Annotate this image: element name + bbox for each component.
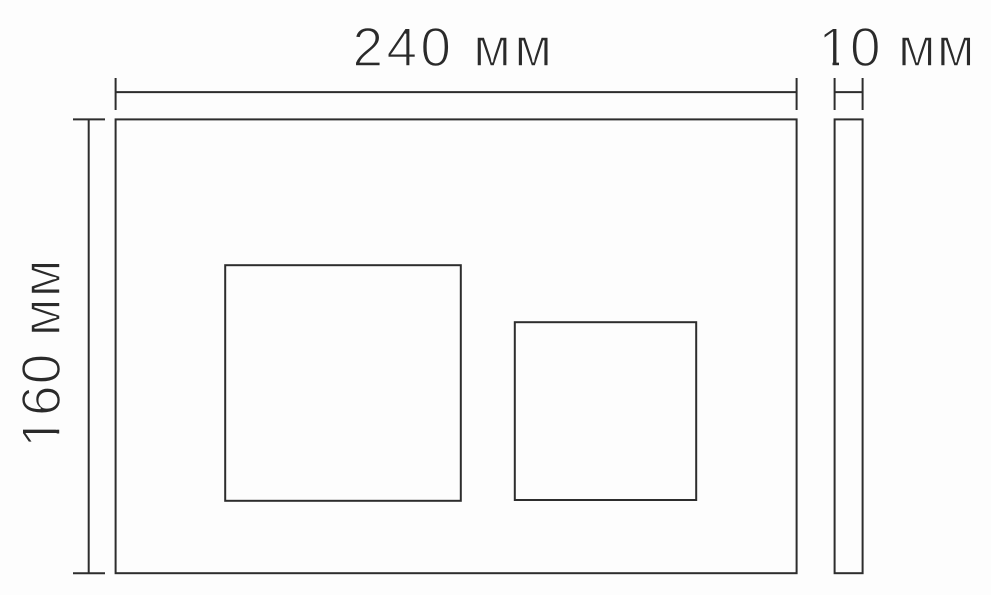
svg-text:240 мм: 240 мм bbox=[352, 16, 555, 78]
svg-text:160 мм: 160 мм bbox=[10, 258, 72, 447]
svg-text:10 мм: 10 мм bbox=[818, 16, 975, 78]
